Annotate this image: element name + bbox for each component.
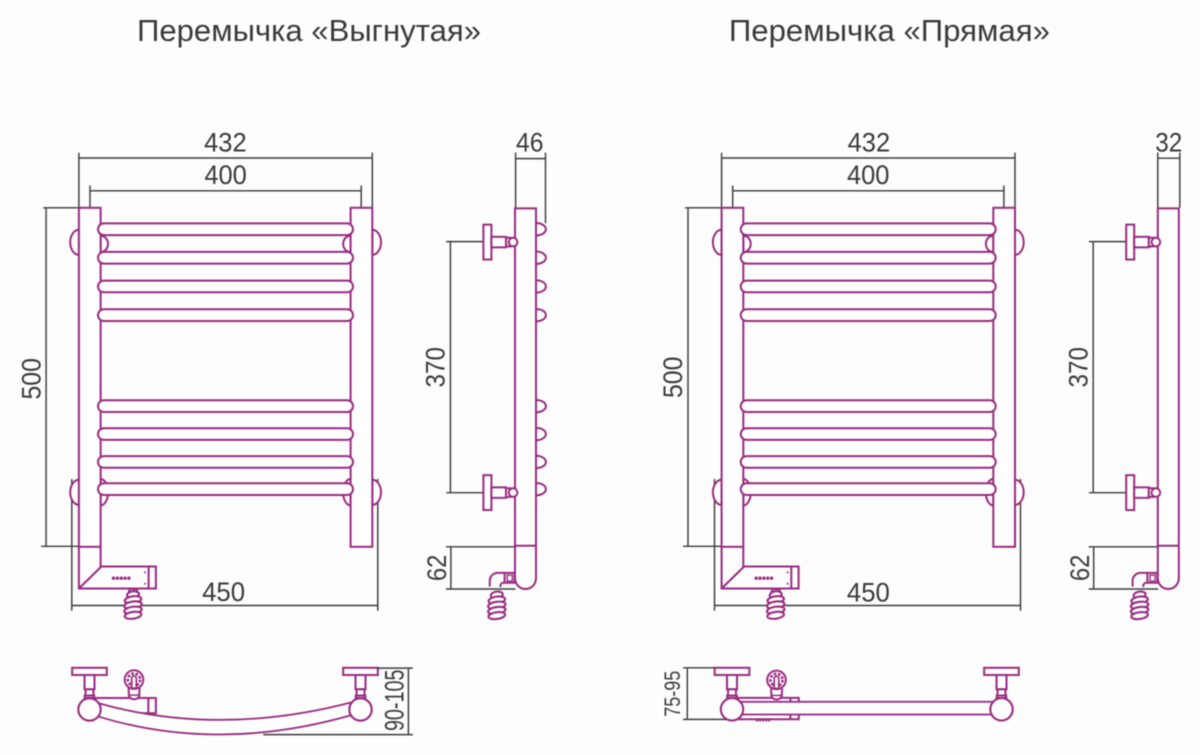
- svg-text:46: 46: [516, 127, 544, 157]
- svg-text:432: 432: [204, 128, 247, 158]
- svg-text:400: 400: [204, 160, 247, 190]
- svg-text:500: 500: [16, 358, 46, 400]
- svg-text:62: 62: [422, 555, 452, 582]
- svg-text:Перемычка «Выгнутая»: Перемычка «Выгнутая»: [137, 13, 481, 48]
- svg-text:432: 432: [848, 128, 891, 158]
- svg-text:400: 400: [847, 160, 890, 190]
- svg-text:90-105: 90-105: [379, 670, 409, 732]
- svg-text:370: 370: [421, 347, 451, 388]
- svg-text:450: 450: [202, 577, 245, 607]
- svg-text:75-95: 75-95: [660, 671, 685, 717]
- svg-text:450: 450: [847, 577, 890, 607]
- svg-text:500: 500: [658, 357, 688, 399]
- svg-text:Перемычка «Прямая»: Перемычка «Прямая»: [729, 13, 1050, 48]
- svg-text:32: 32: [1155, 128, 1182, 158]
- svg-text:62: 62: [1065, 555, 1095, 582]
- svg-text:370: 370: [1064, 347, 1094, 388]
